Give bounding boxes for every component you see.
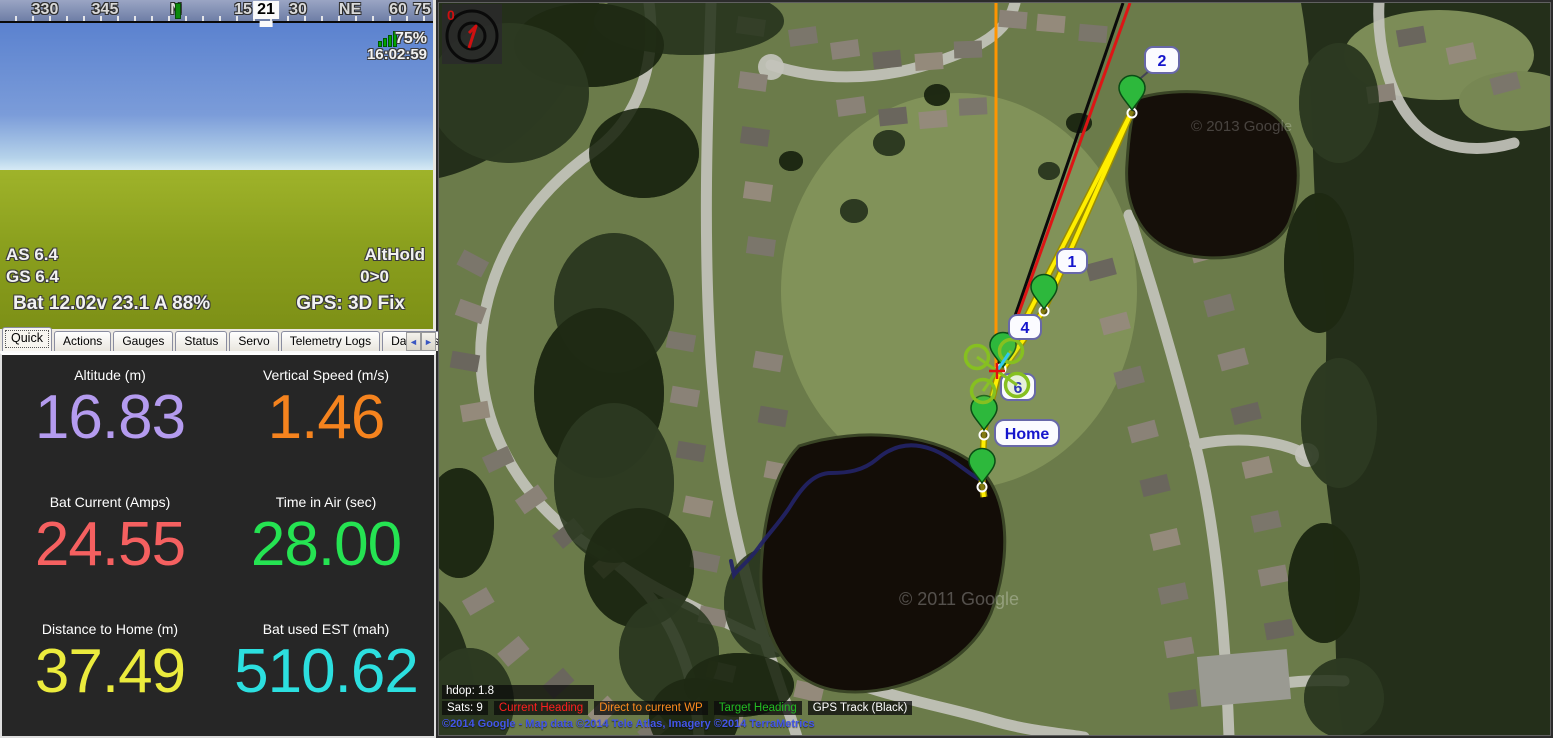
hdop-readout: hdop: 1.8 bbox=[442, 685, 594, 699]
tab-actions[interactable]: Actions bbox=[54, 331, 111, 351]
quick-panel: Altitude (m) 16.83 Vertical Speed (m/s) … bbox=[0, 353, 436, 738]
quick-label: Time in Air (sec) bbox=[276, 494, 377, 510]
groundspeed-text: GS 6.4 bbox=[6, 267, 59, 287]
compass-label-ne: NE bbox=[339, 1, 361, 19]
flown-track-line bbox=[731, 445, 982, 575]
compass-label: 345 bbox=[92, 1, 119, 19]
gps-status-text: GPS: 3D Fix bbox=[296, 293, 405, 315]
tab-servo[interactable]: Servo bbox=[229, 331, 278, 351]
quick-cell-bat-current[interactable]: Bat Current (Amps) 24.55 bbox=[2, 482, 218, 609]
gimbal-heading-value: 0 bbox=[447, 7, 455, 23]
heading-target-bug bbox=[175, 3, 181, 19]
tab-quick[interactable]: Quick bbox=[2, 327, 52, 351]
waypoint-label-2[interactable]: 2 bbox=[1145, 47, 1179, 73]
legend-current-heading: Current Heading bbox=[494, 701, 588, 715]
battery-text: Bat 12.02v 23.1 A 88% bbox=[13, 293, 210, 315]
tab-status[interactable]: Status bbox=[175, 331, 227, 351]
hud-time: 16:02:59 bbox=[367, 46, 427, 63]
quick-label: Bat used EST (mah) bbox=[263, 621, 390, 637]
svg-text:1: 1 bbox=[1068, 254, 1077, 271]
svg-text:2: 2 bbox=[1158, 53, 1167, 70]
waypoint-label-1[interactable]: 1 bbox=[1057, 249, 1087, 273]
gimbal-heading-overlay: 0 bbox=[442, 4, 502, 64]
quick-label: Bat Current (Amps) bbox=[50, 494, 171, 510]
tab-telemetry-logs[interactable]: Telemetry Logs bbox=[281, 331, 380, 351]
quick-label: Distance to Home (m) bbox=[42, 621, 178, 637]
tab-strip: Quick Actions Gauges Status Servo Teleme… bbox=[0, 329, 436, 353]
quick-cell-altitude[interactable]: Altitude (m) 16.83 bbox=[2, 355, 218, 482]
map-copyright: ©2014 Google - Map data ©2014 Tele Atlas… bbox=[442, 718, 815, 730]
flight-mode: AltHold bbox=[365, 245, 425, 265]
quick-cell-distance-to-home[interactable]: Distance to Home (m) 37.49 bbox=[2, 609, 218, 736]
compass-label: 330 bbox=[32, 1, 59, 19]
legend-target-heading: Target Heading bbox=[714, 701, 802, 715]
waypoint-label-4[interactable]: 4 bbox=[1009, 315, 1041, 339]
map-panel[interactable]: © 2011 Google © 2013 Google bbox=[438, 2, 1551, 736]
quick-value: 24.55 bbox=[35, 513, 185, 577]
waypoint-marker bbox=[1119, 76, 1145, 111]
svg-text:4: 4 bbox=[1021, 320, 1030, 337]
legend-gps-track: GPS Track (Black) bbox=[808, 701, 913, 715]
tab-gauges[interactable]: Gauges bbox=[113, 331, 173, 351]
svg-text:Home: Home bbox=[1005, 426, 1050, 443]
quick-cell-vertical-speed[interactable]: Vertical Speed (m/s) 1.46 bbox=[218, 355, 434, 482]
airspeed-text: AS 6.4 bbox=[6, 245, 58, 265]
compass-ribbon: 330 345 N 15 21 30 NE 60 75 bbox=[0, 0, 433, 23]
quick-value: 16.83 bbox=[35, 386, 185, 450]
tab-scroll-left-button[interactable]: ◄ bbox=[406, 332, 421, 351]
quick-label: Vertical Speed (m/s) bbox=[263, 367, 389, 383]
current-heading-readout: 21 bbox=[253, 1, 279, 19]
tab-scroll-right-button[interactable]: ► bbox=[421, 332, 436, 351]
legend-direct-to-wp: Direct to current WP bbox=[594, 701, 708, 715]
sats-readout: Sats: 9 bbox=[442, 701, 488, 715]
quick-value: 510.62 bbox=[234, 640, 418, 704]
home-label[interactable]: Home bbox=[995, 420, 1059, 446]
quick-value: 37.49 bbox=[35, 640, 185, 704]
hud[interactable]: 330 345 N 15 21 30 NE 60 75 bbox=[0, 0, 433, 329]
quick-label: Altitude (m) bbox=[74, 367, 146, 383]
quick-value: 28.00 bbox=[251, 513, 401, 577]
left-panel: 330 345 N 15 21 30 NE 60 75 bbox=[0, 0, 436, 738]
waypoint-status: 0>0 bbox=[360, 267, 389, 287]
compass-label: 60 bbox=[389, 1, 407, 19]
mission-planner-flight-data: 330 345 N 15 21 30 NE 60 75 bbox=[0, 0, 1553, 738]
compass-label: 30 bbox=[289, 1, 307, 19]
quick-value: 1.46 bbox=[268, 386, 385, 450]
quick-cell-time-in-air[interactable]: Time in Air (sec) 28.00 bbox=[218, 482, 434, 609]
home-marker bbox=[969, 449, 995, 484]
tab-scroll-buttons: ◄ ► bbox=[406, 332, 436, 351]
map-overlay: 6 2 1 bbox=[439, 3, 1551, 736]
compass-label: 15 bbox=[234, 1, 252, 19]
quick-cell-bat-used[interactable]: Bat used EST (mah) 510.62 bbox=[218, 609, 434, 736]
compass-label: 75 bbox=[413, 1, 431, 19]
map-legend: Sats: 9 Current Heading Direct to curren… bbox=[442, 701, 912, 715]
